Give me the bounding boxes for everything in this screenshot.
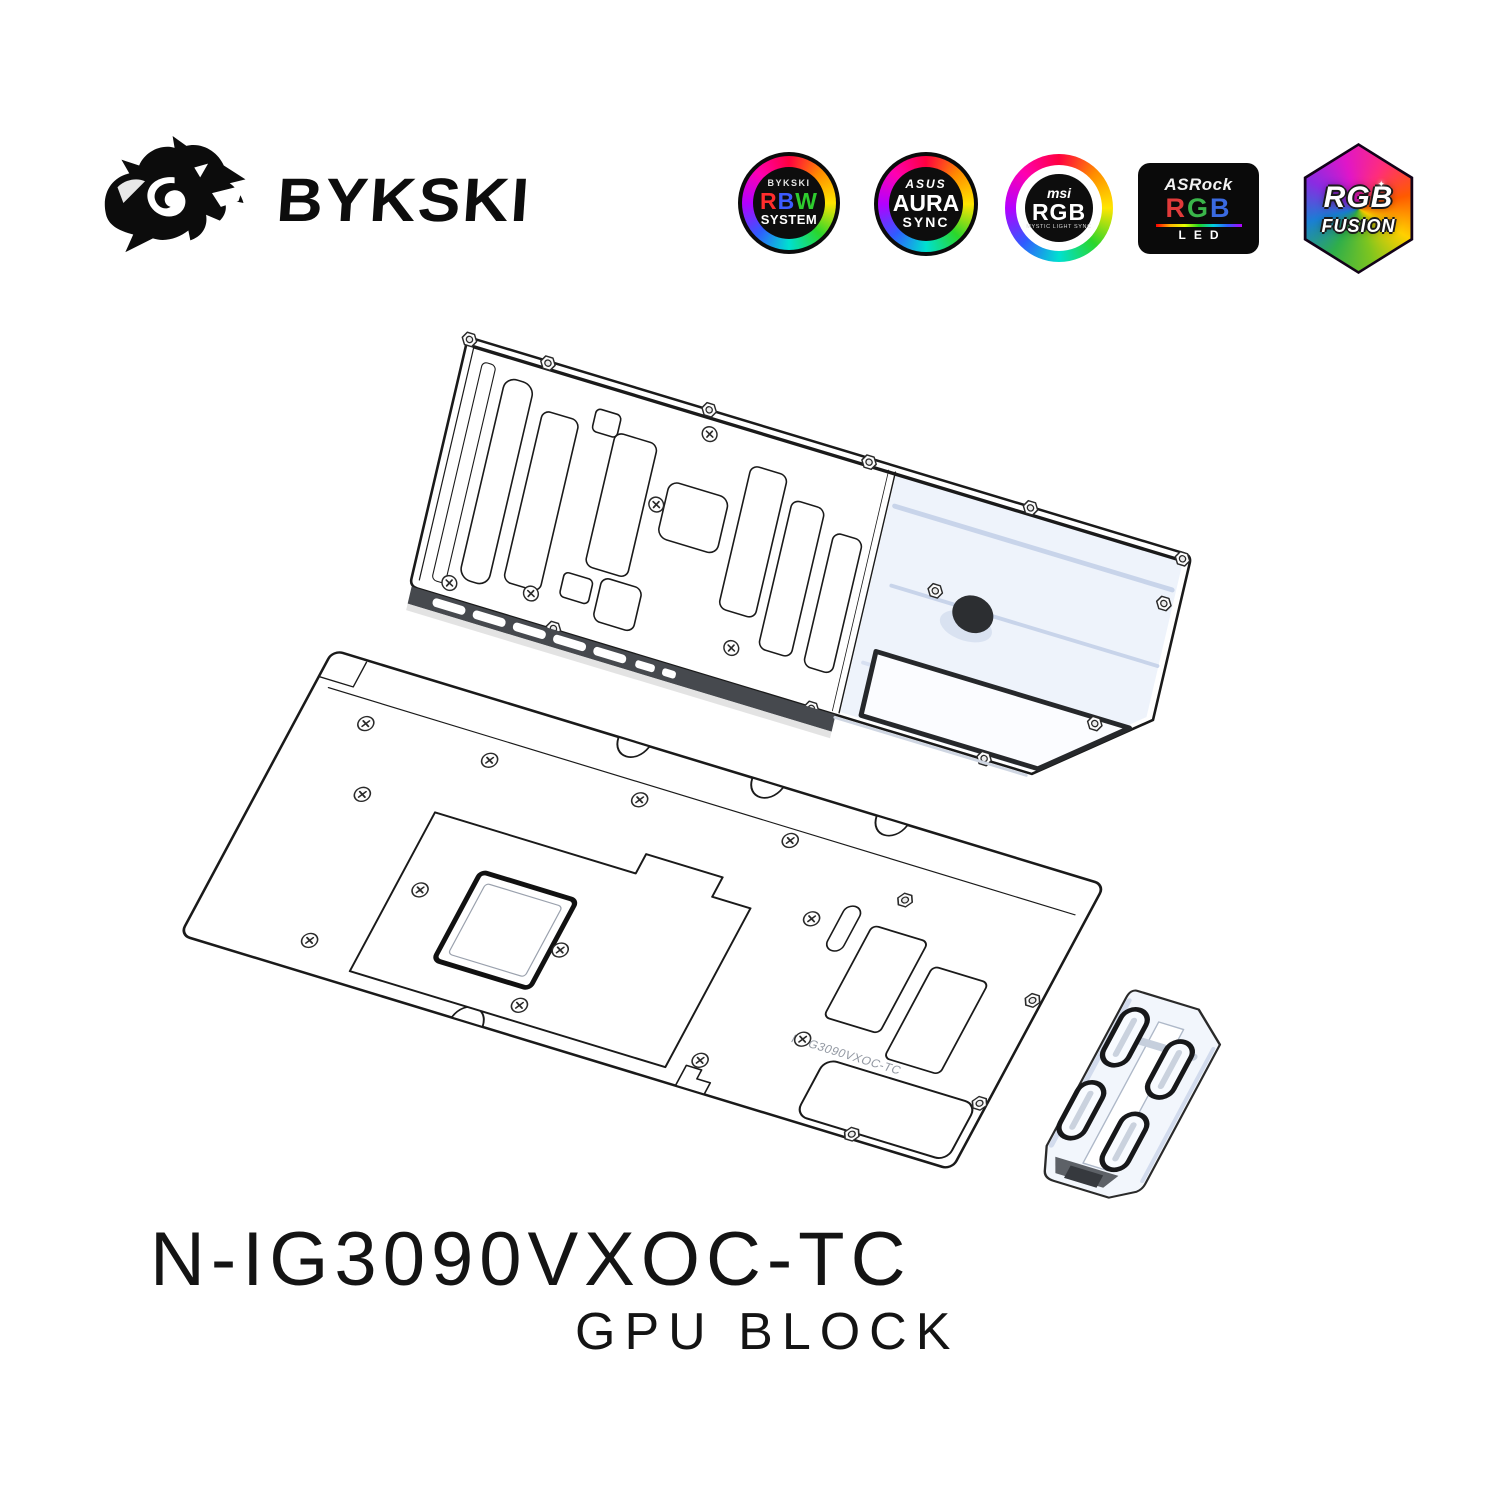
product-model: N-IG3090VXOC-TC bbox=[150, 1216, 912, 1303]
terminal-block-drawing bbox=[1032, 989, 1234, 1205]
product-category: GPU BLOCK bbox=[575, 1302, 959, 1362]
